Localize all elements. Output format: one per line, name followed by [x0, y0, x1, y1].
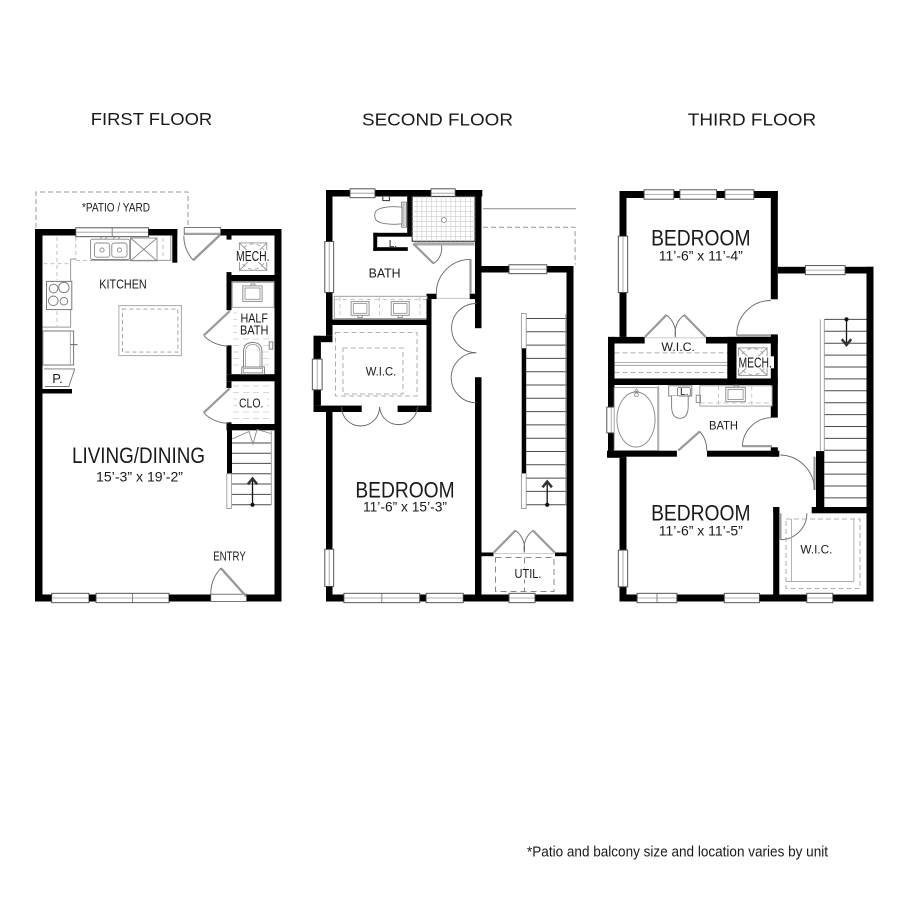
svg-text:11’-6” x 11’-5”: 11’-6” x 11’-5” [659, 523, 743, 539]
svg-text:W.I.C.: W.I.C. [366, 365, 397, 379]
svg-text:MECH.: MECH. [236, 248, 270, 265]
svg-text:11’-6” x 15’-3”: 11’-6” x 15’-3” [363, 499, 447, 515]
svg-text:MECH.: MECH. [738, 355, 772, 372]
svg-text:LIVING/DINING: LIVING/DINING [72, 443, 205, 468]
svg-text:11’-6” x 11’-4”: 11’-6” x 11’-4” [659, 247, 743, 263]
svg-text:BATH: BATH [369, 266, 401, 280]
svg-text:L.: L. [389, 239, 398, 250]
svg-text:*PATIO / YARD: *PATIO / YARD [82, 203, 150, 215]
svg-text:BEDROOM: BEDROOM [651, 500, 750, 525]
svg-text:KITCHEN: KITCHEN [99, 277, 147, 291]
svg-text:W.I.C.: W.I.C. [800, 543, 832, 557]
svg-text:THIRD FLOOR: THIRD FLOOR [688, 110, 817, 130]
svg-text:P.: P. [52, 372, 63, 386]
svg-text:L.: L. [680, 387, 689, 398]
svg-text:CLO.: CLO. [239, 396, 264, 410]
svg-text:BATH: BATH [240, 323, 269, 337]
svg-text:SECOND FLOOR: SECOND FLOOR [362, 110, 513, 130]
svg-text:*Patio and balcony size and lo: *Patio and balcony size and location var… [527, 845, 828, 861]
svg-text:W.I.C.: W.I.C. [661, 340, 695, 354]
svg-text:15’-3” x 19’-2”: 15’-3” x 19’-2” [96, 468, 183, 484]
svg-text:UTIL.: UTIL. [515, 567, 542, 581]
svg-text:FIRST FLOOR: FIRST FLOOR [91, 109, 213, 129]
svg-text:BATH: BATH [709, 418, 738, 432]
svg-text:ENTRY: ENTRY [213, 549, 246, 563]
